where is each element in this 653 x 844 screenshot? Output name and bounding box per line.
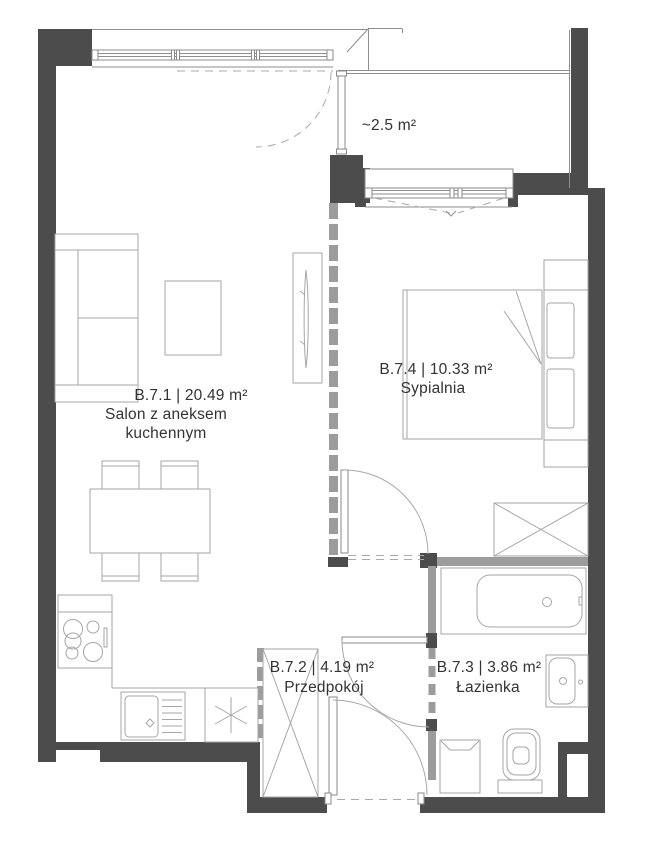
balcony-door-leaf [337,71,347,154]
coffee-table-icon [165,281,221,355]
window-mullion [177,50,180,60]
balcony-screen-diagonal [347,29,368,52]
wall-top-left-corner [38,29,92,66]
floor-plan: B.7.1 | 20.49 m² Salon z aneksem kuchenn… [0,0,653,844]
window-end-cap [506,188,513,198]
hallway-name: Przedpokój [284,679,364,696]
wall-bathroom-west-lower [428,731,436,780]
window-end-cap [365,188,372,198]
hallway-code: B.7.2 | 4.19 m² [270,659,374,676]
wall-bathdoor-top-block [426,633,437,648]
window-mullion [450,188,454,198]
kitchen-hob-icon [58,595,112,668]
duct-left [558,742,567,797]
balcony-door-swing-arc [256,72,331,147]
wall-bathroom-west-upper [428,566,436,633]
washbasin-icon [546,655,588,707]
wall-left [38,29,56,762]
wall-window-left-jamb [355,185,366,207]
window-end-cap [92,50,98,60]
balcony-area-label: ~2.5 m² [362,117,416,134]
entrance-door-leaf [329,697,337,795]
living-room-window [92,50,347,154]
bedroom-door [341,470,428,554]
kitchen-furniture [58,595,258,742]
headboard-panel [544,260,588,467]
window-mullion [458,188,462,198]
casement-tick [446,211,456,216]
living-room-code: B.7.1 | 20.49 m² [134,387,247,404]
bedroom-code: B.7.4 | 10.33 m² [379,361,492,378]
casement-indicator [458,198,504,213]
washing-machine-icon [440,740,480,793]
wall-balcony-right [571,28,588,195]
bedroom-door-leaf [341,470,348,553]
wall-bathdoor-bottom-block [426,719,437,731]
window-mullion [252,50,255,60]
wall-right [588,188,605,803]
wall-hall-left [247,762,260,798]
appliance-slot-icon [205,688,258,742]
sofa-icon [55,234,138,402]
bedroom-door-swing-arc [344,470,428,554]
bedroom-wardrobe-icon [494,503,588,556]
wall-bottom-b [100,750,260,762]
bathroom-door-leaf [342,637,427,643]
bedroom-furniture [403,260,588,556]
dining-set-icon [90,461,210,581]
tv-cabinet-icon [293,253,322,383]
dining-table [90,489,210,553]
doors [325,470,429,804]
window-sill-band [365,169,513,188]
wall-bottom-a [56,742,260,750]
bedroom-name: Sypialnia [401,380,466,397]
wall-bottom-right [420,797,605,813]
window-end-cap [327,50,333,60]
wall-hall-bottom [247,797,327,813]
entrance-door-swing-arc [333,700,427,795]
entrance-jamb [418,793,424,804]
living-room-name-line2: kuchennym [125,425,206,442]
wall-partition-end-block [328,557,348,567]
window-mullion [172,50,175,60]
wall-bedroom-window-right [508,173,588,195]
entrance-jamb [325,793,331,804]
bathroom-name: Łazienka [456,679,520,696]
entrance-door [325,697,427,804]
toilet-icon [498,729,542,793]
bedroom-window [365,169,513,216]
bathroom-code: B.7.3 | 3.86 m² [437,659,541,676]
floor-plan-page: B.7.1 | 20.49 m² Salon z aneksem kuchenn… [0,0,653,844]
kitchen-sink-icon [121,692,185,740]
wall-bathroom-north [437,557,588,566]
window-mullion [257,50,260,60]
living-room-name-line1: Salon z aneksem [105,406,227,423]
bathtub-icon [441,568,586,634]
casement-indicator [374,198,450,213]
